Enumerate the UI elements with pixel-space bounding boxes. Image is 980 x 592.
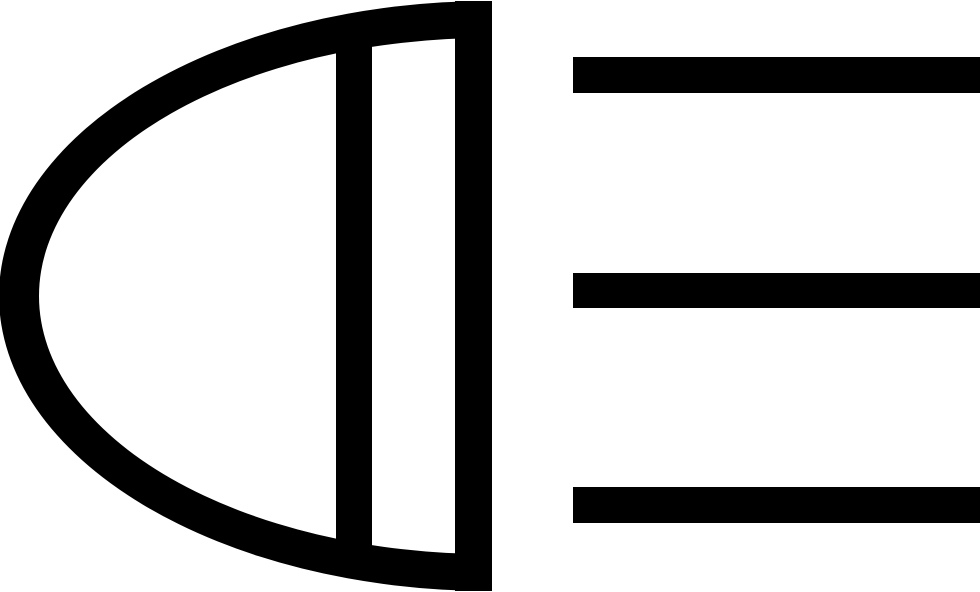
- beam-line-top: [573, 57, 980, 93]
- beam-line-middle: [573, 273, 980, 308]
- lamp-flat-edge-bar: [455, 1, 492, 591]
- lens-divider-bar: [336, 44, 372, 548]
- beam-line-bottom: [573, 487, 980, 523]
- headlight-with-beams-icon: [0, 0, 980, 592]
- icon-canvas: [0, 0, 980, 592]
